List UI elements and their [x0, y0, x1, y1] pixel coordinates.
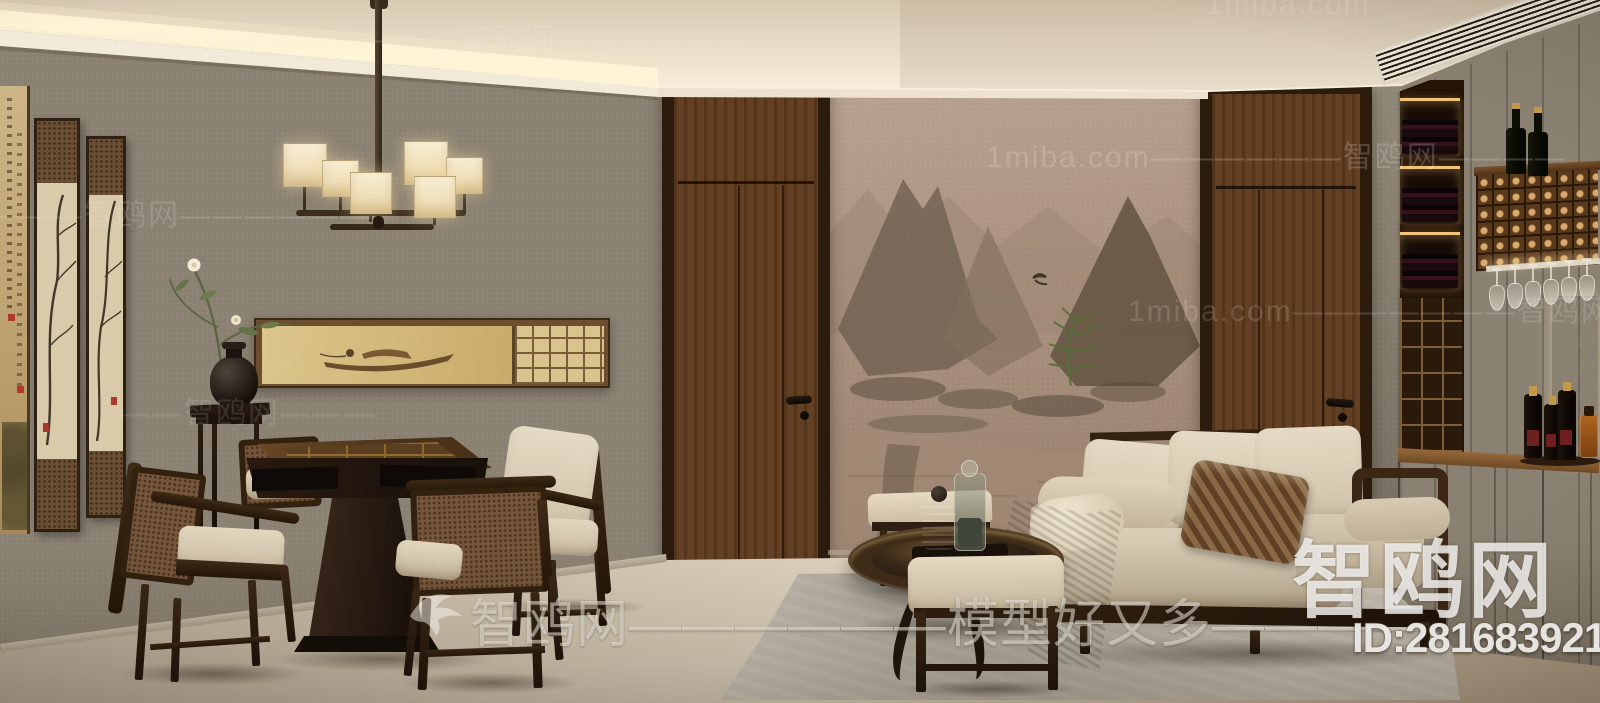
- standing-wine-bottle: [1528, 132, 1548, 176]
- glass-bowl: [1543, 279, 1559, 305]
- whiskey-decanter: [1580, 414, 1598, 458]
- chandelier-finial: [373, 216, 384, 229]
- door-groove: [738, 185, 740, 568]
- calligraphy-column: [7, 98, 12, 308]
- door-groove: [782, 185, 784, 568]
- sofa-shadow: [1060, 638, 1460, 670]
- chair-seat-cushion: [395, 539, 464, 581]
- jar-stopper: [931, 486, 947, 502]
- decanter-contents: [958, 518, 982, 546]
- chandelier-rod: [463, 194, 466, 212]
- rattan-section: [89, 451, 123, 515]
- counter-wine-bottle: [1558, 390, 1576, 460]
- sofa-right-arm-cushion: [1343, 496, 1450, 542]
- plum-branch-art: [89, 197, 123, 453]
- wine-glass: [1506, 266, 1524, 312]
- lattice-panel: [512, 326, 604, 384]
- glass-stem: [1514, 269, 1516, 283]
- glass-stem: [1550, 265, 1552, 279]
- glass-stem: [1532, 267, 1534, 281]
- right-door-knob: [1338, 413, 1347, 422]
- standing-wine-bottle: [1506, 128, 1526, 174]
- wine-bottles-horizontal: [1402, 254, 1458, 288]
- chair-shadow: [115, 662, 310, 686]
- footstool-frame: [914, 608, 1060, 618]
- glass-bowl: [1507, 283, 1523, 309]
- door-transom-groove: [678, 181, 814, 184]
- red-seal: [17, 386, 24, 393]
- wine-bottles-horizontal: [1402, 188, 1458, 222]
- chandelier-shade: [350, 172, 392, 214]
- rattan-section: [37, 121, 77, 183]
- left-door: [674, 90, 818, 572]
- glass-bowl: [1489, 285, 1505, 311]
- red-seal: [8, 314, 15, 321]
- wine-glass: [1542, 262, 1560, 308]
- plum-blossom-panel: [34, 118, 80, 532]
- calligraphy-column: [17, 126, 22, 386]
- glass-stem: [1586, 261, 1588, 275]
- rattan-section: [89, 139, 123, 195]
- sofa-leg: [1250, 630, 1260, 654]
- decanter-cap: [1584, 406, 1594, 416]
- chair-front-right-backrest: [410, 486, 550, 597]
- glass-bowl: [1579, 275, 1595, 301]
- bottle-cap: [1563, 382, 1571, 391]
- vase-lip: [222, 342, 246, 349]
- plant-branches: [120, 225, 310, 375]
- interior-render: 1miba.com——————智鸥网—————— 1miba.com——————…: [0, 0, 1600, 703]
- sofa-leg: [1080, 626, 1090, 654]
- mahjong-table-plinth: [294, 636, 440, 652]
- plant-stand-apron: [196, 414, 262, 424]
- footstool-stretcher: [922, 664, 1054, 671]
- glass-stem: [1568, 263, 1570, 277]
- glass-bowl: [1525, 281, 1541, 307]
- dark-vase: [210, 356, 258, 408]
- table-drawer-panel: [252, 466, 338, 491]
- green-glass-jar: [922, 498, 956, 550]
- bottle-label: [1546, 434, 1556, 447]
- footstool-cushion: [908, 555, 1065, 616]
- rattan-section: [37, 459, 77, 529]
- wine-shelf: [1400, 166, 1460, 224]
- bottle-label: [1527, 430, 1539, 446]
- scroll-landscape: [2, 422, 27, 530]
- bottle-cap: [1529, 386, 1537, 396]
- chandelier-shade: [414, 176, 456, 218]
- wine-glass: [1578, 258, 1596, 304]
- left-door-knob: [800, 411, 809, 420]
- wine-cork-rack: [1476, 169, 1598, 271]
- wine-shelf: [1400, 232, 1460, 290]
- chandelier-rod: [303, 187, 306, 211]
- wine-cubby-grid: [1400, 298, 1462, 452]
- bottle-label: [1560, 430, 1572, 445]
- counter-wine-bottle: [1524, 394, 1542, 458]
- decanter-stopper: [961, 460, 978, 477]
- wine-glass: [1524, 264, 1542, 310]
- door-transom-groove: [1216, 186, 1356, 189]
- wine-glass: [1488, 268, 1506, 314]
- glass-stem: [1496, 271, 1498, 285]
- footstool-leg: [916, 612, 926, 692]
- chandelier-rod: [339, 197, 342, 213]
- footstool-leg: [1048, 606, 1058, 690]
- ceiling: [0, 0, 1600, 130]
- calligraphy-scroll: [0, 86, 30, 534]
- glass-bowl: [1561, 277, 1577, 303]
- wine-glass: [1560, 260, 1578, 306]
- sofa-leg: [1420, 622, 1430, 648]
- chandelier-shade: [283, 143, 327, 187]
- plum-branch-art: [37, 185, 77, 461]
- bottle-cap: [1549, 396, 1556, 405]
